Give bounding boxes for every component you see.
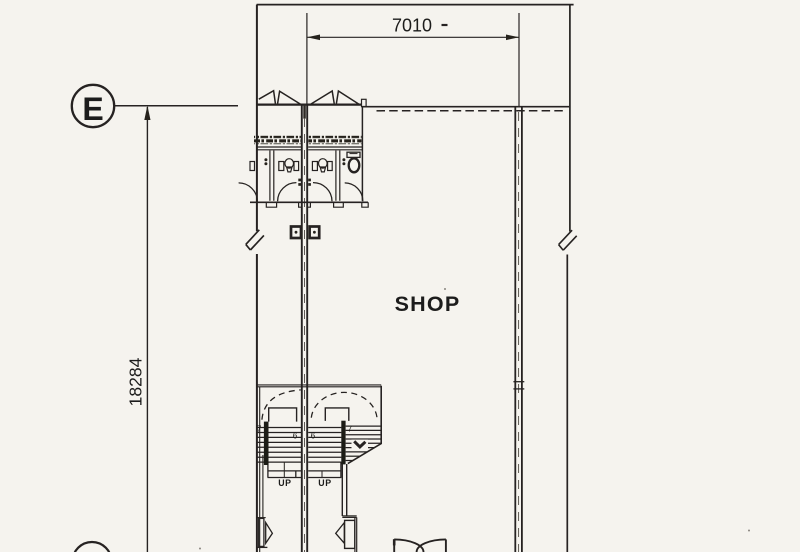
svg-text:E: E [82,91,103,127]
svg-text:SHOP: SHOP [395,292,461,316]
svg-text:7010: 7010 [392,16,432,36]
svg-text:7: 7 [348,424,353,433]
svg-text:UP: UP [278,478,291,488]
svg-text:6: 6 [293,431,298,440]
svg-text:6: 6 [311,431,316,440]
svg-text:UP: UP [318,478,331,488]
svg-text:18284: 18284 [126,357,146,406]
